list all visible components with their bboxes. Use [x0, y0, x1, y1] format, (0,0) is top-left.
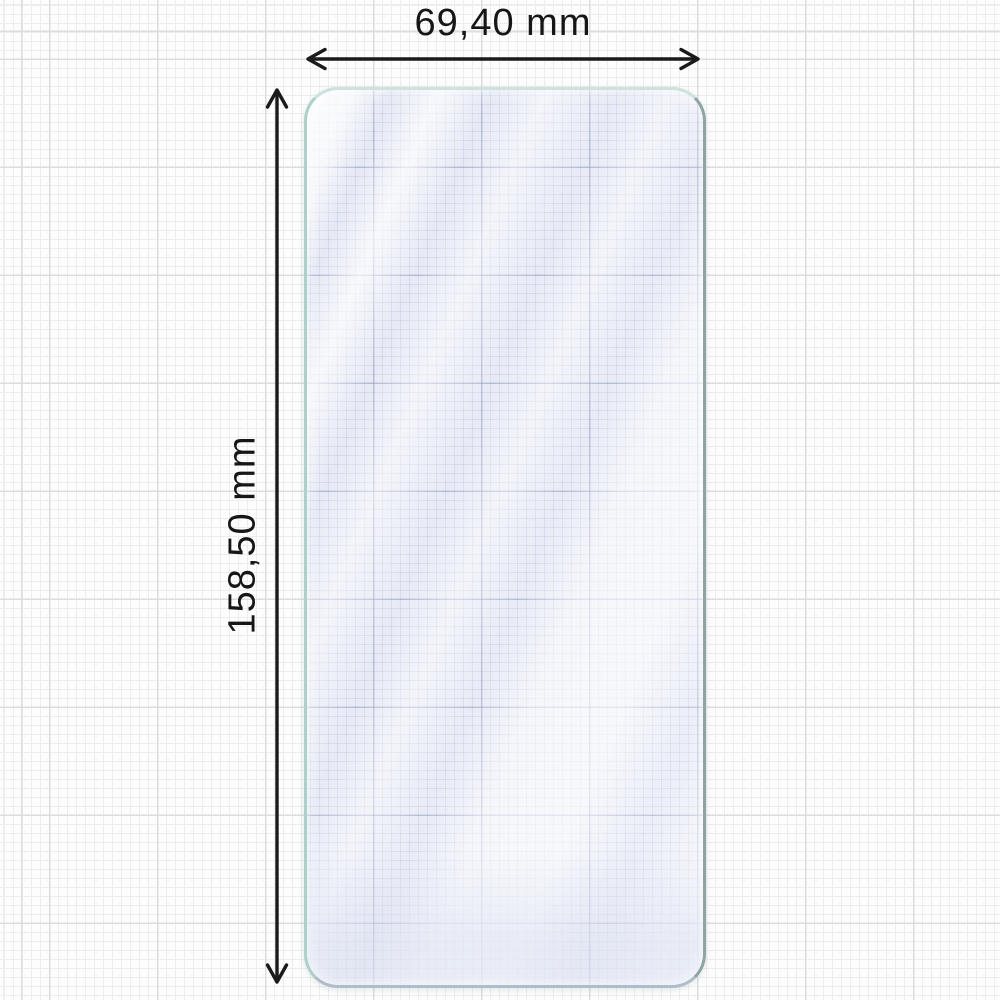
dimension-diagram: 69,40 mm 158,50 mm — [0, 0, 1000, 1000]
width-dimension-arrow — [303, 46, 703, 72]
screen-protector — [304, 87, 706, 988]
height-dimension-arrow — [263, 85, 291, 987]
height-dimension-label: 158,50 mm — [222, 435, 265, 634]
width-dimension-label: 69,40 mm — [303, 0, 703, 46]
